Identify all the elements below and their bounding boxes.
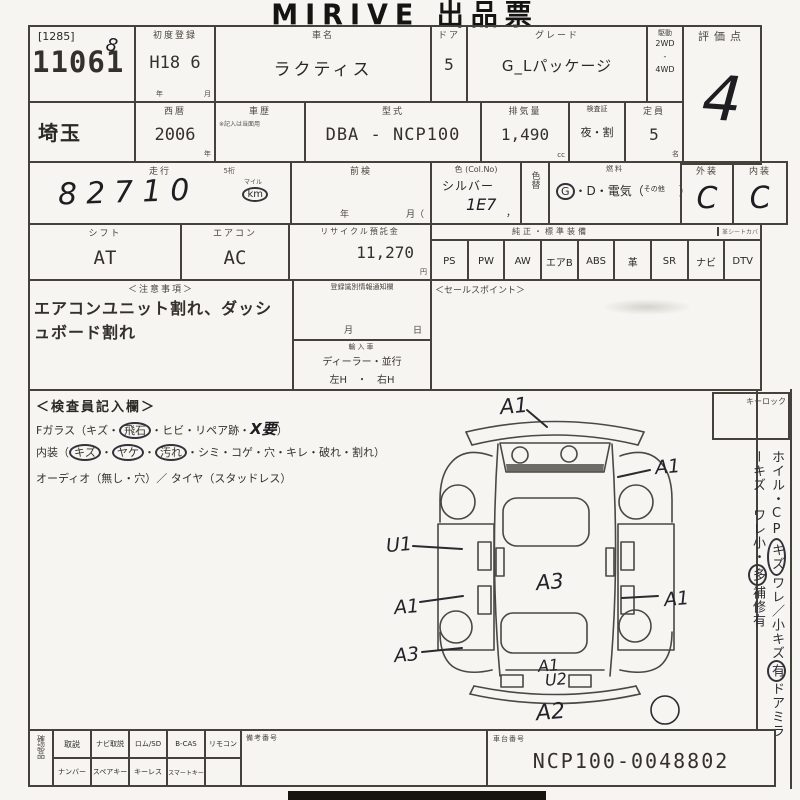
confirm-smart-key: スマートキー xyxy=(166,757,206,787)
side-note-p4: 小・ xyxy=(750,536,765,564)
chassis-cell: 車台番号 NCP100-0048802 xyxy=(486,729,776,787)
prefecture-cell: 埼玉 xyxy=(28,101,136,163)
notes-text: エアコンユニット割れ、ダッシュボード割れ xyxy=(30,295,292,347)
side-note-p1: ホイル・CP xyxy=(769,450,784,538)
import-handle: 左H ・ 右H xyxy=(294,371,430,386)
line1-head: Fガラス（キズ・ xyxy=(36,424,119,437)
color-label: 色 (Col.No) xyxy=(432,164,520,175)
side-note-c2: 有 xyxy=(767,660,786,682)
drive-2wd: 2WD xyxy=(648,38,682,51)
line1-mid: ・ヒビ・リペア跡・ xyxy=(151,424,250,437)
confirm-label: 確認品 xyxy=(36,735,47,759)
remarks-cell: 備考番号 xyxy=(240,729,488,787)
side-note-p5: 補修有 xyxy=(750,586,765,628)
recycle-value: 11,270 xyxy=(290,243,430,262)
confirm-rom-sd: ロム/SD xyxy=(128,729,168,759)
fuel-mid: ・D・電気（ xyxy=(575,184,644,198)
interior-cell: 内装 C xyxy=(732,161,788,225)
drive-label: 駆動 xyxy=(648,28,682,38)
recycle-cell: リサイクル預託金 11,270 円 xyxy=(288,223,432,281)
notes-label: ＜注意事項＞ xyxy=(30,282,292,295)
doors-cell: ドア 5 xyxy=(430,25,468,103)
dot1: ・ xyxy=(101,446,112,459)
auction-sheet: MIRIVE 出品票 [1285] 11061 8 初度登録 H18 6 年 月… xyxy=(0,0,800,800)
confirm-navi-torisetsu: ナビ取説 xyxy=(90,729,130,759)
year-label: 西暦 xyxy=(136,104,214,117)
dot2: ・ xyxy=(144,446,155,459)
first-reg-value: H18 6 xyxy=(136,53,214,73)
shift-value: AT xyxy=(30,247,180,269)
exterior-grade: C xyxy=(682,181,732,216)
equip-sr: SR xyxy=(652,241,689,281)
color-change-cell: 色替 xyxy=(520,161,550,225)
recycle-label: リサイクル預託金 xyxy=(290,226,430,237)
sales-point-label: ＜セールスポイント＞ xyxy=(435,283,525,296)
displacement-label: 排気量 xyxy=(482,104,568,117)
confirm-torisetsu: 取説 xyxy=(52,729,92,759)
damage-code-right-front: A1 xyxy=(654,455,681,479)
registration-cell: 登録識別情報通知欄 月 日 xyxy=(292,279,432,341)
color-comma: ， xyxy=(506,204,516,219)
confirm-spare-key: スペアキー xyxy=(90,757,130,787)
line2-circled-yake: ヤケ xyxy=(112,444,144,461)
side-note-p2: ワレ／小キズ xyxy=(769,576,784,660)
cc-unit: cc xyxy=(557,151,565,159)
inspection-value: 夜・割 xyxy=(570,124,624,140)
recycle-unit: 円 xyxy=(420,267,427,277)
drive-cell: 駆動 2WD - 4WD xyxy=(646,25,684,103)
aircon-cell: エアコン AC xyxy=(180,223,290,281)
aircon-value: AC xyxy=(182,247,288,269)
doors-label: ドア xyxy=(432,28,466,41)
drive-4wd: 4WD xyxy=(648,64,682,77)
model-code-label: 型式 xyxy=(306,104,480,117)
color-code: 1E7 xyxy=(466,195,496,214)
confirm-remote: リモコン xyxy=(204,729,242,759)
inspector-line2: 内装（キズ・ヤケ・汚れ・シミ・コゲ・穴・キレ・破れ・割れ） xyxy=(36,444,385,460)
damage-code-left-door: U1 xyxy=(385,533,413,557)
sales-point-cell: ＜セールスポイント＞ xyxy=(430,279,762,391)
keylock-cell: キーロック xyxy=(712,392,790,440)
import-cell: 輸入車 ディーラー・並行 左H ・ 右H xyxy=(292,339,432,391)
confirm-bcas: B-CAS xyxy=(166,729,206,759)
color-value: シルバー xyxy=(442,177,520,194)
car-name-value: ラクティス xyxy=(216,55,430,80)
line2-circled-kizu: キズ xyxy=(69,444,101,461)
interior-label: 内装 xyxy=(734,164,786,177)
damage-code-left-rear-fender: A3 xyxy=(393,643,420,667)
interior-grade: C xyxy=(732,178,787,218)
equip-navi: ナビ xyxy=(689,241,726,281)
shift-cell: シフト AT xyxy=(28,223,182,281)
confirm-number-plate: ナンバー xyxy=(52,757,92,787)
fuel-other: その他 xyxy=(644,185,665,193)
registration-day: 日 xyxy=(413,323,422,336)
first-reg-cell: 初度登録 H18 6 年 月 xyxy=(134,25,216,103)
remarks-label: 備考番号 xyxy=(246,733,278,743)
grade-value: G_Lパッケージ xyxy=(468,55,646,76)
import-label: 輸入車 xyxy=(294,342,430,352)
prefecture-value: 埼玉 xyxy=(38,117,134,146)
mileage-cell: 走行 5桁 82710 マイル km xyxy=(28,161,292,225)
inspection-label: 検査証 xyxy=(570,104,624,114)
capacity-value: 5 xyxy=(626,125,682,144)
line1-close: ） xyxy=(277,424,288,437)
first-reg-label: 初度登録 xyxy=(136,28,214,41)
displacement-cell: 排気量 1,490 cc xyxy=(480,101,570,163)
doors-value: 5 xyxy=(432,55,466,74)
displacement-value: 1,490 xyxy=(482,125,568,144)
fuel-label: 燃料 xyxy=(550,164,680,174)
equip-dtv: DTV xyxy=(725,241,760,281)
car-name-label: 車名 xyxy=(216,28,430,41)
confirm-label-cell: 確認品 xyxy=(28,729,54,787)
fuel-g-circled: G xyxy=(556,183,575,200)
month-unit: 月 xyxy=(204,89,211,99)
registration-label: 登録識別情報通知欄 xyxy=(294,282,430,292)
shift-label: シフト xyxy=(30,226,180,239)
prev-inspection-cell: 前検 年 月（ xyxy=(290,161,432,225)
equip-ps: PS xyxy=(432,241,469,281)
inspector-line3: オーディオ（無し・穴）／ タイヤ（スタッドレス） xyxy=(36,470,291,486)
history-label: 車歴 xyxy=(216,104,304,117)
score-cell: 評価点 4 xyxy=(682,25,762,165)
damage-code-roof: A3 xyxy=(535,569,565,595)
prev-year: 年 xyxy=(340,207,349,220)
side-note: ホイル・CPキズワレ／小キズ有ドアミラーキズ ワレ小・多補修有 xyxy=(748,450,786,750)
inspector-label: ＜検査員記入欄＞ xyxy=(36,396,156,415)
equip-abs: ABS xyxy=(579,241,616,281)
lot-bracket: [1285] xyxy=(38,30,75,43)
line1-hand-x: X要 xyxy=(250,420,277,438)
equip-airbag: エアB xyxy=(542,241,579,281)
chassis-label: 車台番号 xyxy=(493,734,525,744)
registration-month: 月 xyxy=(344,323,353,336)
score-label: 評価点 xyxy=(684,28,760,44)
equip-pw: PW xyxy=(469,241,506,281)
right-margin-line xyxy=(790,389,792,789)
confirm-empty-cell xyxy=(204,757,242,787)
history-note: ※記入は当面用 xyxy=(219,119,304,128)
side-note-c3: 多 xyxy=(748,564,767,586)
damage-code-hatch-u2: U2 xyxy=(544,669,567,690)
drive-sep: - xyxy=(648,51,682,64)
lot-cell: [1285] 11061 8 xyxy=(28,25,136,103)
prev-inspection-label: 前検 xyxy=(292,164,430,177)
dot3: ・ xyxy=(187,446,198,459)
exterior-cell: 外装 C xyxy=(680,161,734,225)
inspector-line1: Fガラス（キズ・飛石・ヒビ・リペア跡・X要） xyxy=(36,418,288,439)
confirm-keyless: キーレス xyxy=(128,757,168,787)
year-value: 2006 xyxy=(136,125,214,145)
mileage-value: 82710 xyxy=(57,173,199,213)
equipment-cell: 純正・標準装備 革シートカバ PS PW AW エアB ABS 革 SR ナビ … xyxy=(430,223,762,281)
color-cell: 色 (Col.No) シルバー 1E7 ， xyxy=(430,161,522,225)
year-unit: 年 xyxy=(156,89,163,99)
line2-rest: シミ・コゲ・穴・キレ・破れ・割れ） xyxy=(198,446,385,459)
model-code-value: DBA - NCP100 xyxy=(306,125,480,145)
capacity-cell: 定員 5 名 xyxy=(624,101,684,163)
keylock-label: キーロック xyxy=(716,396,786,407)
equipment-label: 純正・標準装備 xyxy=(512,226,589,237)
damage-code-front-bumper: A1 xyxy=(499,393,529,419)
chassis-number: NCP100-0048802 xyxy=(488,749,774,773)
equip-leather: 革 xyxy=(615,241,652,281)
capacity-label: 定員 xyxy=(626,104,682,117)
notes-cell: ＜注意事項＞ エアコンユニット割れ、ダッシュボード割れ xyxy=(28,279,294,391)
grade-label: グレード xyxy=(468,28,646,41)
color-change-label: 色替 xyxy=(529,171,542,189)
damage-code-rear-bumper: A2 xyxy=(535,699,566,726)
line2-circled-yogore: 汚れ xyxy=(155,444,187,461)
prev-month: 月（ xyxy=(406,207,424,220)
side-note-c1: キズ xyxy=(767,538,786,576)
exterior-label: 外装 xyxy=(682,164,732,177)
mileage-sub: 5桁 xyxy=(224,166,235,176)
damage-code-right-rear-door: A1 xyxy=(663,587,690,611)
history-cell: 車歴 ※記入は当面用 xyxy=(214,101,306,163)
year-cell: 西暦 2006 年 xyxy=(134,101,216,163)
fuel-cell: 燃料 G・D・電気（その他） xyxy=(548,161,682,225)
score-value: 4 xyxy=(682,59,763,137)
damage-code-left-rear-door: A1 xyxy=(393,595,420,619)
bottom-clipped-bar xyxy=(288,791,546,800)
sales-point-smudge xyxy=(602,299,692,315)
aircon-label: エアコン xyxy=(182,226,288,239)
equipment-note: 革シートカバ xyxy=(717,227,758,236)
grade-cell: グレード G_Lパッケージ xyxy=(466,25,648,103)
mileage-unit-top: マイル xyxy=(244,177,262,186)
equip-aw: AW xyxy=(505,241,542,281)
inspection-cell: 検査証 夜・割 xyxy=(568,101,626,163)
line1-circled-tobiishi: 飛石 xyxy=(119,422,151,439)
model-code-cell: 型式 DBA - NCP100 xyxy=(304,101,482,163)
import-dealer: ディーラー・並行 xyxy=(294,353,430,368)
car-name-cell: 車名 ラクティス xyxy=(214,25,432,103)
mileage-unit-km: km xyxy=(242,187,268,202)
line2-head: 内装（ xyxy=(36,446,69,459)
capacity-unit: 名 xyxy=(672,149,679,159)
year-unit2: 年 xyxy=(204,149,211,159)
